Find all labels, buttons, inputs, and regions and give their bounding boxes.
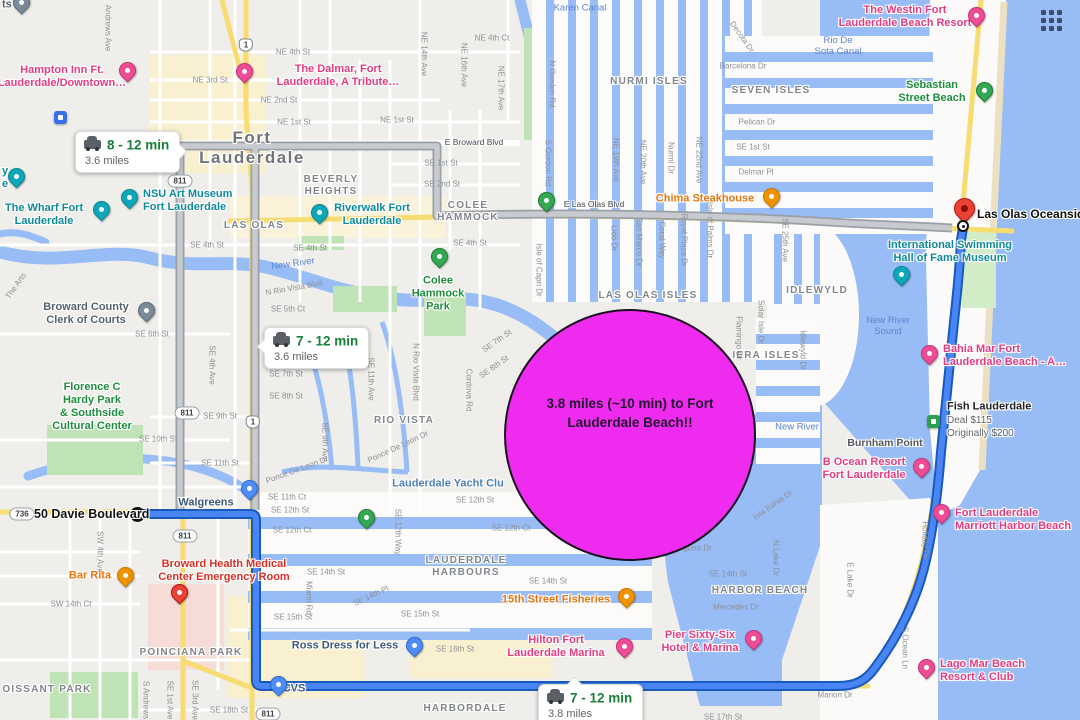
route-badge-7-12-min-17th[interactable]: 7 - 12 min 3.8 miles [538, 684, 643, 720]
street-label: NE 3rd St [193, 75, 228, 84]
street-label: SE 12th Way [393, 509, 402, 555]
start-address-label: 50 Davie Boulevard [34, 507, 149, 521]
label-ross[interactable]: Ross Dress for Less [292, 640, 398, 653]
label-swimming-hall[interactable]: International SwimmingHall of Fame Museu… [888, 239, 1012, 265]
label-hilton[interactable]: Hilton FortLauderdale Marina [507, 634, 604, 660]
street-label: S Andrews [141, 681, 150, 719]
route-shield-811: 811 [175, 407, 200, 420]
label-hardy-park[interactable]: Florence CHardy Park& SouthsideCultural … [52, 381, 131, 433]
label-bar-rita[interactable]: Bar Rita [69, 570, 111, 583]
street-label: Pelican Dr [739, 117, 776, 126]
brightline-station-icon-glyph [54, 111, 67, 124]
street-label: SE 8th St [269, 391, 303, 400]
label-clerk-courts[interactable]: Broward CountyClerk of Courts [43, 301, 129, 327]
street-label: Coral Way [657, 221, 666, 258]
water-label: New River [775, 421, 819, 432]
street-label: SE 10th St [139, 434, 177, 443]
area-label: HARBOR BEACH [712, 585, 809, 597]
street-label: Miami Rd [304, 581, 313, 615]
area-label: LAS OLAS [224, 220, 284, 232]
car-icon [547, 693, 564, 702]
area-label: POINCIANA PARK [140, 647, 243, 659]
distance-annotation-circle: 3.8 miles (~10 min) to Fort Lauderdale B… [504, 309, 756, 561]
street-label: SE 1st Ave [165, 681, 174, 720]
label-marriott[interactable]: Fort LauderdaleMarriott Harbor Beach [955, 507, 1071, 533]
route-shield-1: 1 [239, 39, 253, 52]
route-shield-736: 736 [9, 508, 34, 521]
street-label: NE 1st St [380, 115, 414, 124]
street-label: S Ocean Ln [900, 627, 909, 669]
street-label: Holiday Dr [920, 521, 929, 558]
label-the-dalmar[interactable]: The Dalmar, FortLauderdale, A Tribute… [277, 63, 400, 89]
destination-dot-glyph [957, 220, 969, 232]
area-label: OISSANT PARK [2, 684, 91, 696]
distance-annotation-text: 3.8 miles (~10 min) to Fort Lauderdale B… [506, 395, 754, 433]
label-broward-health[interactable]: Broward Health MedicalCenter Emergency R… [158, 558, 289, 584]
street-label: SE 7th St [269, 369, 303, 378]
map-label: E Las Olas Blvd [564, 199, 624, 209]
street-label: SE 14th St [529, 576, 567, 585]
street-label: NE 22nd Ave [694, 137, 703, 184]
label-westin[interactable]: The Westin FortLauderdale Beach Resort [839, 4, 972, 30]
area-label: IDLEWYLD [786, 285, 848, 297]
street-label: NE 4th Ct [475, 33, 510, 42]
street-label: S Gordon Rd [543, 140, 552, 187]
route-shield-811: 811 [173, 530, 198, 543]
street-label: SE 4th St [453, 238, 487, 247]
route-badge-7-12-min-federal[interactable]: 7 - 12 min 3.6 miles [264, 327, 369, 369]
street-label: NE 4th St [276, 47, 310, 56]
street-label: Isle of Palms Dr [705, 202, 714, 258]
label-riverwalk[interactable]: Riverwalk FortLauderdale [334, 202, 410, 228]
street-label: N Rio Vista Blvd [411, 343, 420, 401]
street-label: SE 12th Ct [273, 525, 312, 534]
street-label: SE 9th St [203, 411, 237, 420]
label-burnham-point: Burnham Point [847, 437, 922, 449]
label-the-wharf[interactable]: The Wharf FortLauderdale [5, 202, 83, 228]
street-label: SE 12th St [456, 495, 494, 504]
street-label: Cordova Rd [464, 369, 473, 412]
label-lago-mar[interactable]: Lago Mar BeachResort & Club [940, 658, 1025, 684]
street-label: Royal Plaza Dr [679, 213, 688, 266]
route-shield-811: 811 [168, 175, 193, 188]
street-label: N Lake Dr [771, 540, 780, 576]
street-label: SE 14th St [307, 567, 345, 576]
street-label: Barcelona Dr [720, 61, 767, 70]
street-label: SE 15th St [401, 609, 439, 618]
street-label: Nurmi Dr [666, 142, 675, 174]
apps-grid-icon[interactable] [1041, 10, 1067, 36]
street-label: Solar Isle Dr [756, 300, 765, 344]
street-label: SE 4th St [190, 240, 224, 249]
street-label: SE 5th Ct [271, 304, 305, 313]
street-label: NE 14th Ave [419, 32, 428, 76]
street-label: NE 1st St [277, 117, 311, 126]
street-label: SE 3rd Ave [190, 680, 199, 720]
street-label: Lido Dr [609, 225, 618, 251]
area-label: RIO VISTA [374, 415, 434, 427]
street-label: SE 11th St [201, 458, 239, 467]
street-label: N Gordon Rd [547, 60, 556, 107]
label-sebastian-beach[interactable]: SebastianStreet Beach [898, 79, 965, 105]
street-label: NE 19th Ave [611, 138, 620, 182]
label-hampton-inn[interactable]: Hampton Inn Ft.Lauderdale/Downtown… [0, 64, 126, 90]
label-walgreens[interactable]: Walgreens [178, 497, 233, 510]
street-label: Flamingo Dr [734, 316, 743, 360]
street-label: NE 2nd St [261, 95, 297, 104]
label-fisheries[interactable]: 15th Street Fisheries [502, 594, 610, 607]
label-city: FortLauderdale [199, 128, 305, 168]
label-corner-cut[interactable]: ts [2, 0, 12, 11]
label-fish-lauderdale[interactable]: Fish Lauderdale [947, 401, 1031, 414]
label-fish-deal: Deal $115 [947, 415, 992, 427]
street-label: SW 14th Ct [51, 599, 92, 608]
area-label: HARBORDALE [423, 703, 506, 715]
area-label: BEVERLYHEIGHTS [304, 174, 359, 198]
street-label: Delmar Pl [738, 167, 773, 176]
label-pier-66[interactable]: Pier Sixty-SixHotel & Marina [661, 629, 738, 655]
car-icon [273, 336, 290, 345]
label-bahia-mar[interactable]: Bahia Mar FortLauderdale Beach - A… [943, 343, 1066, 369]
route-shield-811: 811 [256, 708, 281, 720]
label-yacht-club[interactable]: Lauderdale Yacht Clu [392, 478, 504, 491]
street-label: SE 1st St [424, 158, 457, 167]
street-label: SE 4th St [293, 243, 327, 252]
map-label: E Broward Blvd [445, 137, 504, 147]
route-shield-1: 1 [246, 416, 260, 429]
street-label: SE 16th St [436, 644, 474, 653]
street-label: SE 6th St [135, 329, 169, 338]
area-label: LAUDERDALEHARBOURS [426, 555, 507, 579]
label-colee-park[interactable]: ColeeHammockPark [412, 275, 465, 314]
street-label: SE 12th Ct [492, 523, 531, 532]
street-label: SE 1st St [736, 142, 769, 151]
street-label: E Lake Dr [845, 562, 854, 598]
route-badge-8-12-min[interactable]: 8 - 12 min 3.6 miles [75, 131, 180, 173]
street-label: Idlewyld Dr [798, 330, 807, 370]
area-label: COLEEHAMMOCK [437, 200, 499, 224]
street-label: Mercedes Dr [713, 602, 759, 611]
destination-label: Las Olas Oceansid Yoga & Fitness [977, 207, 1080, 222]
water-label: Karen Canal [554, 2, 607, 13]
street-label: Marion Dr [817, 690, 852, 699]
water-label: Rio DeSota Canal [814, 35, 861, 57]
street-label: SE 18th St [210, 705, 248, 714]
area-label: SEVEN ISLES [732, 85, 811, 97]
street-label: SE 12th St [271, 505, 309, 514]
car-icon [84, 140, 101, 149]
map-canvas[interactable]: Hampton Inn Ft.Lauderdale/Downtown…The D… [0, 0, 1080, 720]
label-nsu-art-museum[interactable]: NSU Art MuseumFort Lauderdale [143, 188, 232, 214]
area-label: LAS OLAS ISLES [598, 290, 697, 302]
street-label: San Marco Dr [634, 217, 643, 266]
street-label: SE 4th Ave [207, 345, 216, 384]
fish-deal-tag-icon-glyph [927, 415, 940, 428]
street-label: Isle of Capri Dr [534, 243, 543, 296]
street-label: SE 25th Ave [780, 218, 789, 262]
street-label: SE 14th St [709, 569, 747, 578]
street-label: SE 17th St [704, 712, 742, 720]
street-label: NE 16th Ave [459, 43, 468, 87]
street-label: Andrews Ave [103, 5, 112, 52]
street-label: NE 17th Ave [496, 66, 505, 110]
label-fish-original: Originally $200 [947, 428, 1014, 440]
water-label: New RiverSound [866, 315, 910, 337]
label-b-ocean[interactable]: B Ocean ResortFort Lauderdale [822, 456, 905, 482]
area-label: NURMI ISLES [610, 76, 688, 88]
street-label: SE 11th Ct [268, 492, 306, 501]
street-label: SW 4th Ave [95, 531, 104, 573]
street-label: NE 20th Ave [638, 140, 647, 184]
street-label: SE 2nd St [424, 179, 460, 188]
